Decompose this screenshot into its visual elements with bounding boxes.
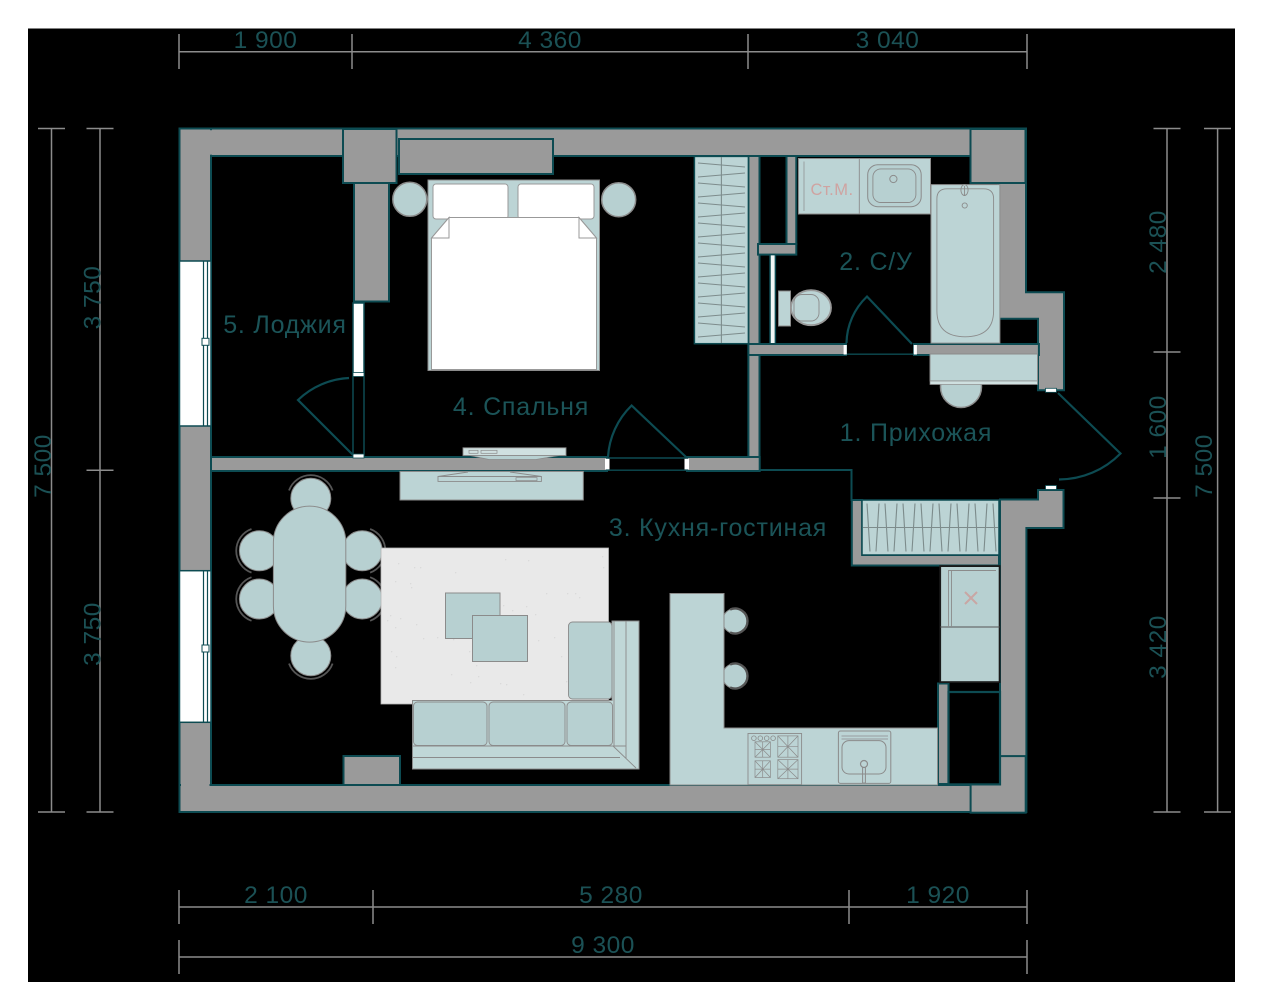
svg-text:Ст.М.: Ст.М.	[810, 181, 853, 199]
svg-text:7 500: 7 500	[30, 434, 57, 498]
svg-text:4 360: 4 360	[518, 27, 582, 54]
svg-text:5 280: 5 280	[579, 882, 643, 909]
svg-text:3 750: 3 750	[80, 266, 107, 330]
svg-text:5. Лоджия: 5. Лоджия	[223, 311, 347, 339]
svg-text:4. Спальня: 4. Спальня	[453, 393, 589, 421]
svg-text:2 480: 2 480	[1145, 210, 1172, 274]
svg-text:9 300: 9 300	[571, 932, 635, 959]
svg-text:1 900: 1 900	[234, 27, 298, 54]
svg-text:3 040: 3 040	[856, 27, 920, 54]
svg-text:3 420: 3 420	[1145, 615, 1172, 679]
svg-text:1 920: 1 920	[906, 882, 970, 909]
svg-text:1 600: 1 600	[1145, 395, 1172, 459]
svg-text:2. С/У: 2. С/У	[839, 248, 912, 276]
svg-text:2 100: 2 100	[244, 882, 308, 909]
svg-text:3 750: 3 750	[80, 602, 107, 666]
svg-text:7 500: 7 500	[1191, 434, 1218, 498]
svg-text:3. Кухня-гостиная: 3. Кухня-гостиная	[609, 514, 827, 542]
svg-text:1. Прихожая: 1. Прихожая	[840, 419, 992, 447]
